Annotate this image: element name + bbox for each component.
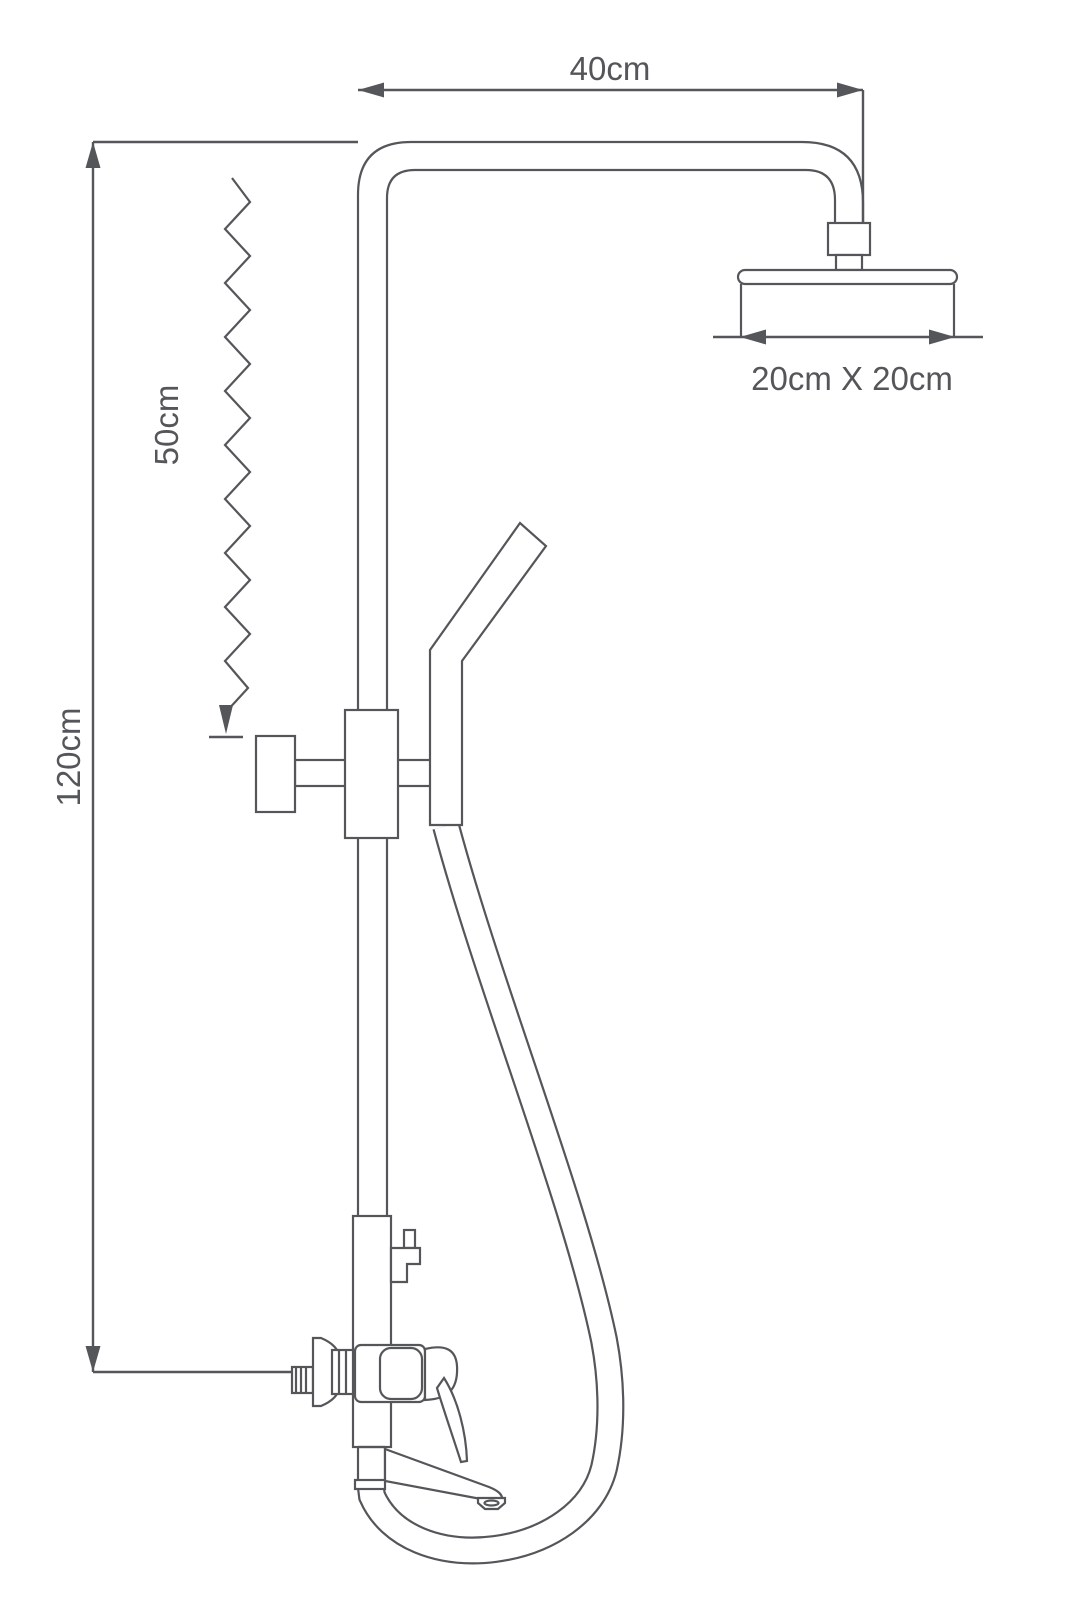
head-top-plate (738, 270, 957, 284)
dimension-total-height: 120cm (50, 142, 358, 1372)
arrow-left-icon (740, 330, 766, 345)
wall-inlet-assembly (292, 1338, 353, 1406)
hand-shower (430, 523, 546, 825)
lower-pipe-tube (353, 1216, 391, 1447)
head-neck (836, 255, 862, 270)
overhead-shower-head: 20cm X 20cm (713, 223, 983, 397)
arrow-left-icon (358, 83, 384, 98)
dimension-arm-width: 40cm (358, 50, 863, 222)
arrow-up-icon (86, 142, 101, 168)
arrow-right-icon (837, 83, 863, 98)
dimension-head-size: 20cm X 20cm (713, 330, 983, 398)
arrow-down-icon (219, 705, 233, 734)
dimension-label-head-size: 20cm X 20cm (751, 360, 953, 397)
diverter-tab (391, 1248, 420, 1282)
dimension-label-arm-width: 40cm (570, 50, 651, 87)
dimension-label-hose-drop: 50cm (148, 385, 185, 466)
dimension-label-total-height: 120cm (50, 707, 87, 806)
arrow-down-icon (86, 1346, 101, 1372)
zigzag-line (225, 178, 250, 712)
slider-bracket (345, 710, 398, 838)
diagram-canvas: 40cm 120cm 50cm (0, 0, 1074, 1607)
mixer-body (355, 1345, 425, 1402)
dimension-hose-drop: 50cm (148, 178, 250, 737)
pipe-bottom-cap (355, 1480, 385, 1489)
shower-technical-drawing: 40cm 120cm 50cm (0, 0, 1074, 1607)
spout-arm (385, 1449, 502, 1500)
mixer-handle-lever (437, 1378, 467, 1462)
hose-tube-fill (371, 826, 610, 1550)
shower-hose (371, 826, 610, 1550)
diverter-stem (404, 1230, 415, 1248)
hex-nut (332, 1350, 353, 1394)
head-connector-block (828, 223, 870, 255)
arrow-right-icon (929, 330, 955, 345)
hand-shower-body (430, 523, 546, 825)
slider-assembly (256, 710, 432, 838)
slider-knob (256, 736, 295, 812)
